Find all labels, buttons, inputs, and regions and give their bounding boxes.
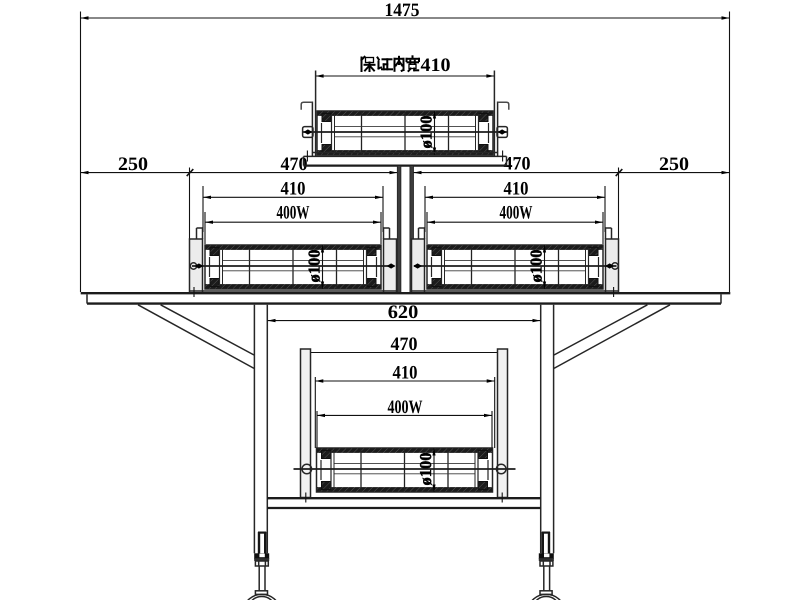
svg-text:250: 250 <box>659 154 689 175</box>
svg-text:400W: 400W <box>388 397 423 418</box>
svg-text:470: 470 <box>391 334 418 355</box>
svg-text:470: 470 <box>504 154 531 175</box>
svg-text:410: 410 <box>393 363 418 384</box>
svg-text:400W: 400W <box>500 203 533 224</box>
svg-text:620: 620 <box>388 302 419 323</box>
svg-text:250: 250 <box>118 154 148 175</box>
svg-text:410: 410 <box>421 55 451 76</box>
svg-text:400W: 400W <box>277 203 310 224</box>
svg-text:410: 410 <box>504 179 529 200</box>
svg-text:410: 410 <box>281 179 306 200</box>
svg-text:1475: 1475 <box>385 0 420 21</box>
